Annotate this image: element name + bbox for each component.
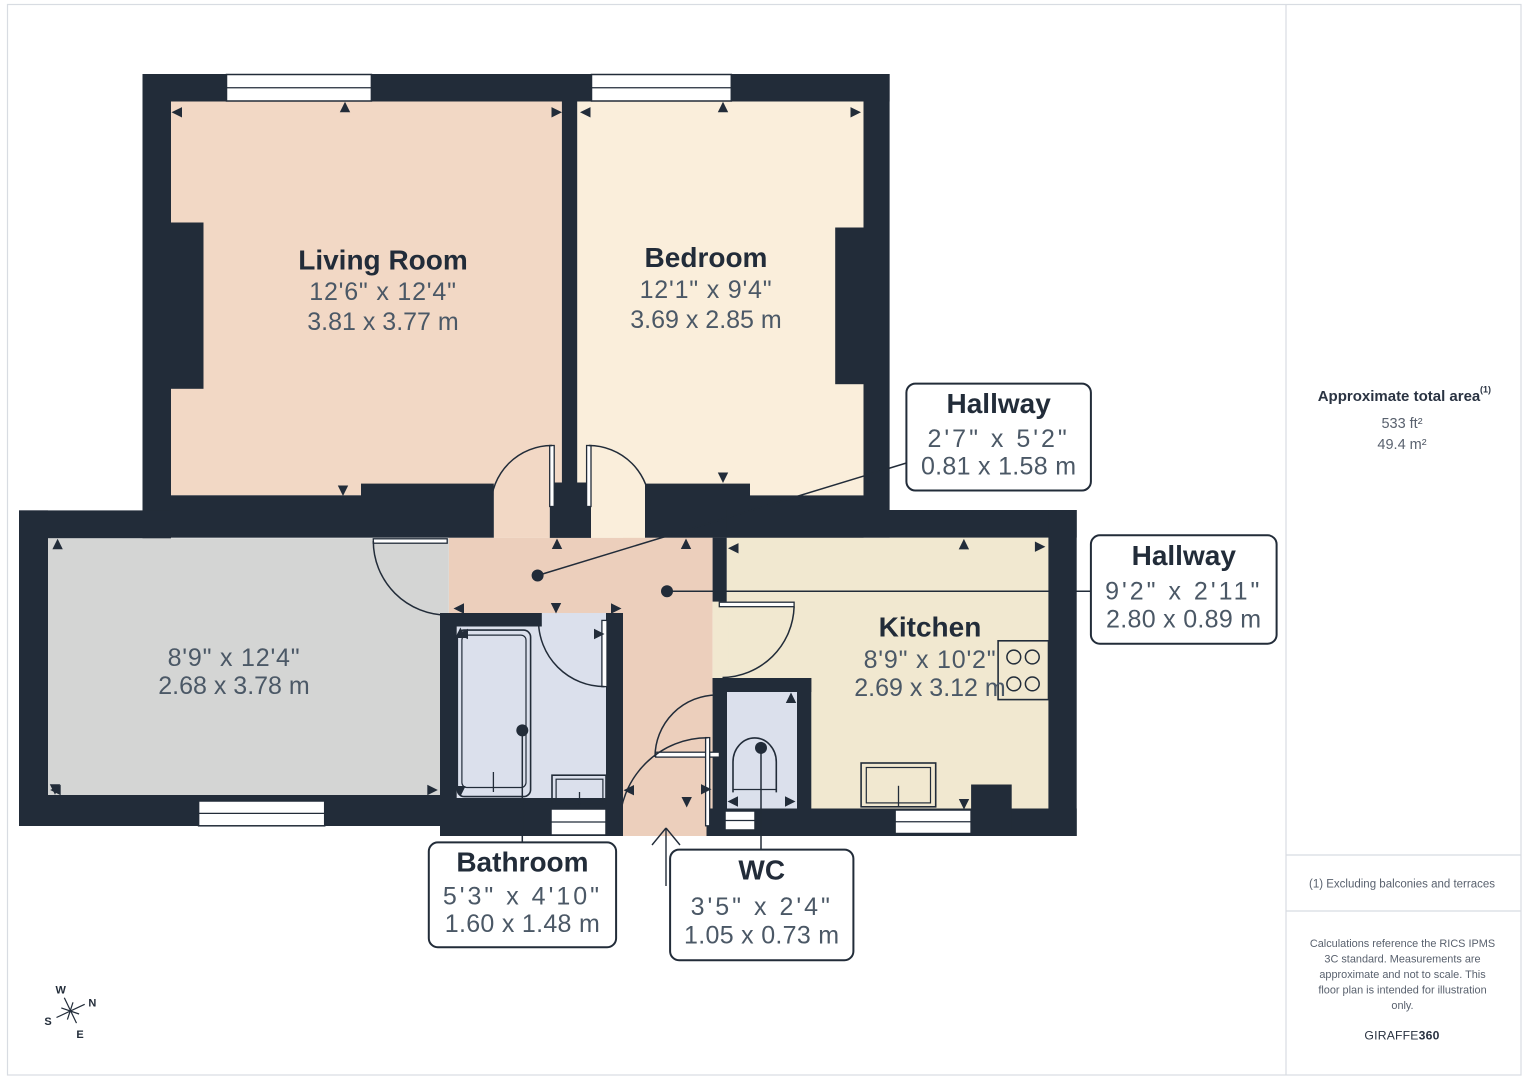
svg-text:1.60 x 1.48 m: 1.60 x 1.48 m (445, 910, 600, 938)
svg-text:floor plan is intended for ill: floor plan is intended for illustration (1318, 984, 1486, 996)
svg-text:2.69 x 3.12 m: 2.69 x 3.12 m (854, 674, 1005, 702)
svg-text:Bedroom: Bedroom (645, 242, 768, 273)
svg-text:49.4 m²: 49.4 m² (1377, 437, 1426, 453)
svg-text:W: W (56, 984, 67, 996)
svg-text:Living Room: Living Room (298, 244, 468, 275)
svg-text:12'6" x 12'4": 12'6" x 12'4" (309, 278, 457, 306)
svg-text:2'7" x 5'2": 2'7" x 5'2" (927, 425, 1069, 453)
svg-text:0.81 x 1.58 m: 0.81 x 1.58 m (921, 453, 1076, 481)
svg-text:Bathroom: Bathroom (456, 846, 588, 877)
svg-text:8'9" x 10'2": 8'9" x 10'2" (864, 646, 997, 674)
svg-text:2.80 x 0.89 m: 2.80 x 0.89 m (1106, 606, 1261, 634)
svg-text:3.81 x 3.77 m: 3.81 x 3.77 m (307, 308, 458, 336)
svg-text:Hallway: Hallway (947, 388, 1052, 419)
svg-text:1.05 x 0.73 m: 1.05 x 0.73 m (684, 922, 839, 950)
svg-text:2.68 x 3.78 m: 2.68 x 3.78 m (158, 672, 309, 700)
svg-text:GIRAFFE360: GIRAFFE360 (1364, 1029, 1439, 1043)
svg-text:only.: only. (1391, 1000, 1413, 1012)
svg-text:approximate and not to scale.: approximate and not to scale. This (1319, 969, 1486, 981)
svg-text:Approximate total area: Approximate total area (1318, 388, 1481, 405)
svg-text:3.69 x 2.85 m: 3.69 x 2.85 m (630, 306, 781, 334)
svg-text:(1) Excluding balconies and te: (1) Excluding balconies and terraces (1309, 879, 1495, 891)
svg-text:3C standard. Measurements are: 3C standard. Measurements are (1324, 953, 1480, 965)
svg-text:Hallway: Hallway (1132, 540, 1237, 571)
svg-text:12'1" x 9'4": 12'1" x 9'4" (640, 276, 773, 304)
svg-text:(1): (1) (1480, 384, 1491, 394)
svg-text:WC: WC (738, 855, 785, 886)
svg-text:9'2" x 2'11": 9'2" x 2'11" (1105, 577, 1262, 605)
svg-text:Kitchen: Kitchen (879, 611, 982, 642)
svg-text:5'3" x 4'10": 5'3" x 4'10" (443, 883, 602, 911)
svg-text:Calculations reference the RIC: Calculations reference the RICS IPMS (1310, 938, 1495, 950)
svg-text:533 ft²: 533 ft² (1381, 416, 1422, 432)
svg-text:3'5" x 2'4": 3'5" x 2'4" (691, 893, 833, 921)
svg-text:E: E (76, 1029, 83, 1041)
svg-text:N: N (88, 998, 96, 1010)
svg-text:8'9" x 12'4": 8'9" x 12'4" (168, 644, 301, 672)
svg-text:S: S (44, 1016, 51, 1028)
